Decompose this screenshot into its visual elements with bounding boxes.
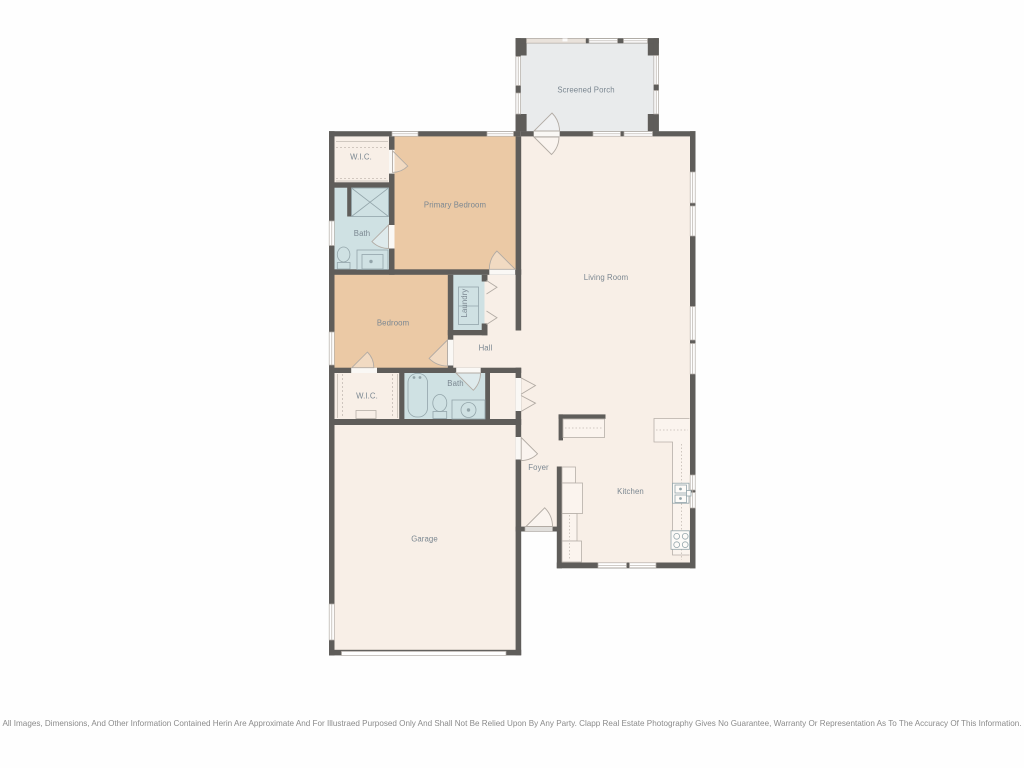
- svg-text:Primary Bedroom: Primary Bedroom: [424, 201, 486, 210]
- svg-text:Living Room: Living Room: [584, 273, 628, 282]
- svg-text:Kitchen: Kitchen: [617, 487, 644, 496]
- svg-text:Garage: Garage: [411, 535, 438, 544]
- svg-text:Bedroom: Bedroom: [377, 319, 409, 328]
- svg-text:Foyer: Foyer: [528, 463, 549, 472]
- svg-text:Laundry: Laundry: [460, 289, 469, 318]
- svg-text:Screened Porch: Screened Porch: [557, 86, 614, 95]
- svg-text:W.I.C.: W.I.C.: [350, 153, 372, 162]
- svg-text:Bath: Bath: [447, 379, 463, 388]
- svg-text:Bath: Bath: [354, 229, 370, 238]
- svg-text:W.I.C.: W.I.C.: [356, 392, 378, 401]
- svg-text:Hall: Hall: [479, 344, 493, 353]
- svg-text:All Images, Dimensions, And Ot: All Images, Dimensions, And Other Inform…: [3, 718, 1022, 728]
